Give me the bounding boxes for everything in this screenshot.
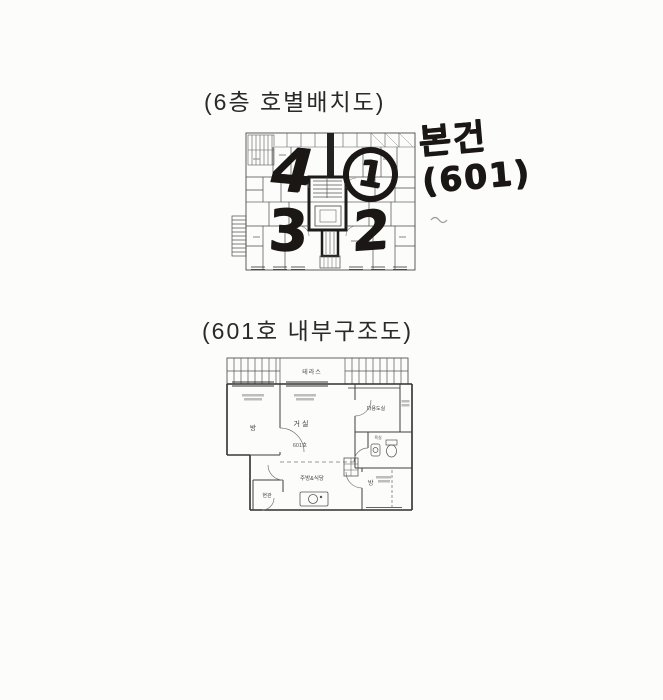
- living-room-label: 거실: [294, 419, 311, 428]
- handwritten-note-line2: (601): [420, 155, 532, 197]
- utility-room-label: 다용도실: [367, 405, 386, 412]
- bath-label: 욕실: [374, 434, 382, 440]
- unit601-floorplan: 테라스: [216, 352, 421, 516]
- unit-structure-title: (601호 내부구조도): [202, 312, 413, 346]
- entrance-label: 현관: [262, 492, 272, 499]
- external-stair: [232, 216, 246, 256]
- handwritten-unit3-number: 3: [267, 202, 309, 260]
- unit-outer-walls: [227, 384, 412, 510]
- kitchen-label: 주방&식당: [300, 474, 324, 482]
- terrace-label: 테라스: [302, 368, 322, 376]
- interior-walls: [227, 384, 412, 510]
- corner-balcony-hatch: [248, 135, 274, 165]
- unit-number-label: 601호: [293, 442, 307, 449]
- scanned-document-page: (6층 호별배치도): [0, 0, 663, 700]
- unit601-plan-drawing: 테라스: [216, 352, 421, 516]
- handwritten-unit2-number: 2: [351, 203, 390, 260]
- pen-squiggle: [431, 218, 447, 223]
- left-room-label: 방: [250, 423, 256, 432]
- right-room-label: 방: [368, 479, 374, 487]
- window-marks: [232, 382, 402, 508]
- bathroom-fixtures: [371, 440, 397, 457]
- room-labels: 방 거실 601호 다용도실 욕실 주방&식당 현관 방: [250, 405, 386, 499]
- handwritten-subject-note: 본건 (601): [417, 116, 532, 197]
- floor-layout-title: (6층 호별배치도): [204, 83, 385, 117]
